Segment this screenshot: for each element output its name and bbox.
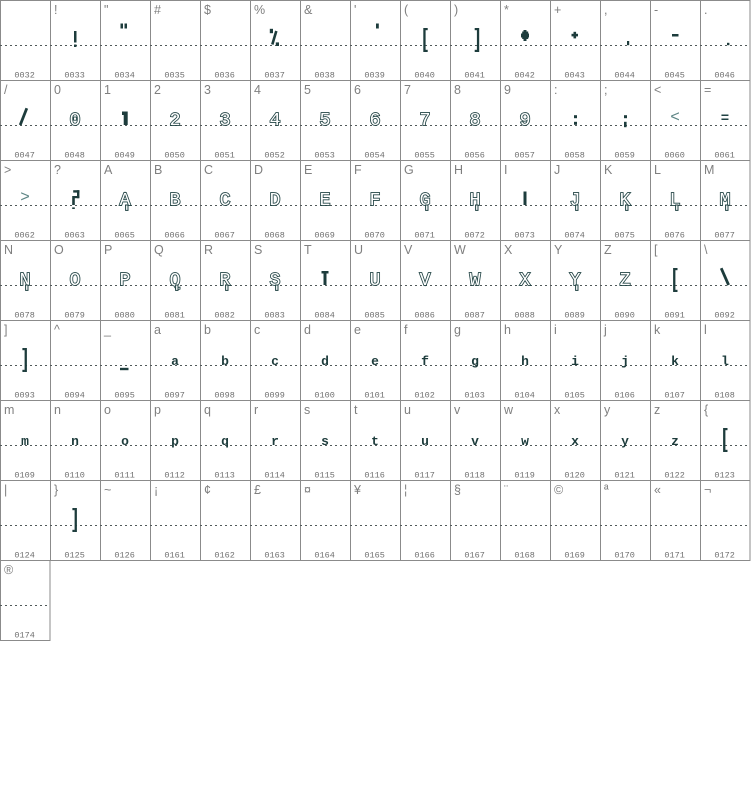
svg-text:N: N	[4, 243, 13, 257]
svg-text:K: K	[620, 191, 631, 211]
svg-text:0043: 0043	[564, 71, 584, 81]
svg-text:0121: 0121	[614, 471, 634, 481]
svg-text:n: n	[54, 403, 61, 417]
svg-text:0120: 0120	[564, 471, 584, 481]
svg-text:7: 7	[419, 110, 430, 131]
svg-text:0041: 0041	[464, 71, 484, 81]
svg-text:H: H	[470, 191, 481, 211]
svg-text:#: #	[154, 3, 161, 17]
svg-text:0070: 0070	[364, 231, 384, 241]
svg-text:2: 2	[154, 83, 161, 97]
svg-text:3: 3	[219, 110, 230, 131]
svg-text:4: 4	[254, 83, 261, 97]
svg-text:0082: 0082	[214, 311, 234, 321]
svg-text:D: D	[254, 163, 263, 177]
svg-text:0115: 0115	[314, 471, 334, 481]
svg-text:0060: 0060	[664, 151, 684, 161]
svg-text:0084: 0084	[314, 311, 334, 321]
svg-text:0044: 0044	[614, 71, 634, 81]
svg-text:[: [	[654, 243, 658, 257]
svg-text:0114: 0114	[264, 471, 284, 481]
svg-text:0092: 0092	[714, 311, 734, 321]
svg-text:b: b	[204, 323, 211, 337]
svg-text:s: s	[304, 403, 310, 417]
svg-text:0059: 0059	[614, 151, 634, 161]
svg-text:R: R	[204, 243, 213, 257]
svg-text:x: x	[554, 403, 561, 417]
svg-text:0161: 0161	[164, 551, 184, 561]
svg-text:X: X	[520, 271, 531, 291]
svg-text:i: i	[554, 323, 557, 337]
svg-text:+: +	[554, 3, 561, 17]
svg-text:q: q	[221, 434, 229, 449]
svg-text:>: >	[20, 189, 30, 207]
svg-text:p: p	[154, 403, 161, 417]
svg-text:0051: 0051	[214, 151, 234, 161]
svg-text:L: L	[654, 163, 661, 177]
svg-text:h: h	[504, 323, 511, 337]
svg-text:t: t	[354, 403, 358, 417]
svg-text:z: z	[654, 403, 660, 417]
svg-text:G: G	[420, 191, 431, 211]
svg-text:Q: Q	[170, 271, 181, 291]
svg-text:0033: 0033	[64, 71, 84, 81]
svg-text:u: u	[404, 403, 411, 417]
svg-text:8: 8	[454, 83, 461, 97]
svg-text:0105: 0105	[564, 391, 584, 401]
svg-text:0168: 0168	[514, 551, 534, 561]
svg-text:;: ;	[604, 83, 607, 97]
svg-text:i: i	[571, 354, 579, 369]
svg-text:Z: Z	[604, 243, 612, 257]
svg-text:^: ^	[54, 323, 60, 337]
svg-text:0049: 0049	[114, 151, 134, 161]
svg-text:0046: 0046	[714, 71, 734, 81]
svg-text:Y: Y	[570, 271, 581, 291]
svg-text:0: 0	[69, 110, 80, 131]
svg-text:0083: 0083	[264, 311, 284, 321]
svg-text:r: r	[254, 403, 258, 417]
svg-text:{: {	[704, 403, 708, 417]
svg-text:B: B	[154, 163, 162, 177]
svg-text:0062: 0062	[14, 231, 34, 241]
svg-text:¥: ¥	[353, 483, 361, 497]
svg-text:P: P	[120, 271, 131, 291]
svg-text:E: E	[304, 163, 312, 177]
svg-text:0: 0	[54, 83, 61, 97]
svg-text:0093: 0093	[14, 391, 34, 401]
svg-text:J: J	[554, 163, 560, 177]
svg-text:0170: 0170	[614, 551, 634, 561]
svg-text:M: M	[720, 191, 731, 211]
svg-text:0090: 0090	[614, 311, 634, 321]
svg-text:0094: 0094	[64, 391, 84, 401]
svg-text:0040: 0040	[414, 71, 434, 81]
svg-text:.: .	[704, 3, 707, 17]
svg-text:0057: 0057	[514, 151, 534, 161]
svg-text:0097: 0097	[164, 391, 184, 401]
svg-text:S: S	[270, 271, 281, 291]
svg-text:0122: 0122	[664, 471, 684, 481]
svg-text:0038: 0038	[314, 71, 334, 81]
svg-text:": "	[104, 3, 108, 17]
svg-text:0100: 0100	[314, 391, 334, 401]
svg-text:/: /	[4, 83, 8, 97]
svg-text:\: \	[704, 243, 708, 257]
svg-text:l: l	[721, 354, 729, 369]
svg-text:©: ©	[554, 483, 564, 497]
svg-text:0169: 0169	[564, 551, 584, 561]
svg-text:Z: Z	[620, 271, 631, 291]
svg-text:0102: 0102	[414, 391, 434, 401]
svg-text:k: k	[654, 323, 661, 337]
svg-text:0065: 0065	[114, 231, 134, 241]
svg-text:0034: 0034	[114, 71, 134, 81]
svg-text:O: O	[70, 271, 81, 291]
svg-text:A: A	[120, 191, 131, 211]
svg-text:0088: 0088	[514, 311, 534, 321]
svg-text:0050: 0050	[164, 151, 184, 161]
svg-text:x: x	[571, 434, 579, 449]
svg-text:$: $	[204, 3, 211, 17]
svg-text:U: U	[370, 271, 381, 291]
svg-text:0172: 0172	[714, 551, 734, 561]
svg-text:g: g	[454, 323, 461, 337]
svg-text:L: L	[670, 191, 681, 211]
svg-text:F: F	[354, 163, 362, 177]
svg-text:U: U	[354, 243, 363, 257]
svg-text:0163: 0163	[264, 551, 284, 561]
svg-text:¨: ¨	[504, 483, 508, 497]
svg-text:,: ,	[604, 3, 607, 17]
svg-text:0118: 0118	[464, 471, 484, 481]
svg-text:-: -	[654, 3, 658, 17]
svg-text:t: t	[371, 434, 379, 449]
svg-text:R: R	[220, 271, 231, 291]
svg-text:&: &	[304, 3, 313, 17]
svg-text:*: *	[504, 3, 509, 17]
svg-text:®: ®	[4, 563, 14, 577]
svg-text:d: d	[304, 323, 311, 337]
svg-text:o: o	[121, 434, 129, 449]
svg-text:!: !	[54, 3, 57, 17]
svg-text:0125: 0125	[64, 551, 84, 561]
svg-text:V: V	[404, 243, 413, 257]
svg-text:e: e	[354, 323, 361, 337]
svg-text:0167: 0167	[464, 551, 484, 561]
svg-text:0165: 0165	[364, 551, 384, 561]
svg-text:0116: 0116	[364, 471, 384, 481]
svg-text:0058: 0058	[564, 151, 584, 161]
svg-text:0077: 0077	[714, 231, 734, 241]
svg-text:|: |	[4, 483, 7, 497]
svg-text:0126: 0126	[114, 551, 134, 561]
svg-text::: :	[554, 83, 557, 97]
svg-text:0171: 0171	[664, 551, 684, 561]
svg-text:4: 4	[269, 110, 280, 131]
svg-text:w: w	[521, 434, 529, 449]
svg-text:z: z	[671, 434, 679, 449]
svg-text:~: ~	[104, 483, 111, 497]
svg-text:9: 9	[519, 110, 530, 131]
svg-text:v: v	[454, 403, 461, 417]
svg-text:0081: 0081	[164, 311, 184, 321]
svg-text:v: v	[471, 434, 479, 449]
svg-text:n: n	[71, 434, 79, 449]
svg-text:o: o	[104, 403, 111, 417]
svg-text:0123: 0123	[714, 471, 734, 481]
svg-text:0061: 0061	[714, 151, 734, 161]
svg-text:0048: 0048	[64, 151, 84, 161]
svg-text:?: ?	[54, 163, 61, 177]
svg-text:0078: 0078	[14, 311, 34, 321]
svg-text:0089: 0089	[564, 311, 584, 321]
svg-text:C: C	[220, 191, 231, 211]
svg-text:0164: 0164	[314, 551, 334, 561]
svg-text:8: 8	[469, 110, 480, 131]
svg-text:§: §	[454, 483, 461, 497]
svg-text:B: B	[170, 191, 181, 211]
svg-text:0095: 0095	[114, 391, 134, 401]
svg-text:0117: 0117	[414, 471, 434, 481]
svg-text:j: j	[621, 354, 629, 369]
svg-text:J: J	[570, 191, 581, 211]
svg-text:0071: 0071	[414, 231, 434, 241]
svg-text:<: <	[670, 109, 680, 127]
svg-text:P: P	[104, 243, 112, 257]
svg-text:0112: 0112	[164, 471, 184, 481]
svg-text:0069: 0069	[314, 231, 334, 241]
svg-text:A: A	[104, 163, 113, 177]
svg-text:0054: 0054	[364, 151, 384, 161]
svg-text:0042: 0042	[514, 71, 534, 81]
svg-text:0099: 0099	[264, 391, 284, 401]
svg-text:0063: 0063	[64, 231, 84, 241]
svg-text:0124: 0124	[14, 551, 34, 561]
svg-text:0113: 0113	[214, 471, 234, 481]
svg-text:V: V	[420, 271, 431, 291]
svg-text:0045: 0045	[664, 71, 684, 81]
svg-text:0103: 0103	[464, 391, 484, 401]
svg-text:0174: 0174	[14, 631, 34, 641]
svg-text:7: 7	[404, 83, 411, 97]
svg-text:0101: 0101	[364, 391, 384, 401]
svg-text:0073: 0073	[514, 231, 534, 241]
svg-text:¢: ¢	[204, 483, 211, 497]
svg-text:a: a	[171, 354, 179, 369]
svg-text:y: y	[621, 434, 629, 449]
svg-text:0087: 0087	[464, 311, 484, 321]
svg-text:f: f	[421, 354, 429, 369]
svg-text:0055: 0055	[414, 151, 434, 161]
svg-text:e: e	[371, 354, 379, 369]
svg-text:s: s	[321, 434, 329, 449]
svg-text:6: 6	[354, 83, 361, 97]
svg-text:m: m	[4, 403, 14, 417]
svg-text:£: £	[254, 483, 261, 497]
svg-text:0067: 0067	[214, 231, 234, 241]
svg-text:0166: 0166	[414, 551, 434, 561]
svg-text:0072: 0072	[464, 231, 484, 241]
svg-text:¬: ¬	[704, 483, 711, 497]
svg-text:9: 9	[504, 83, 511, 97]
svg-text:0108: 0108	[714, 391, 734, 401]
svg-text:0107: 0107	[664, 391, 684, 401]
svg-text:ª: ª	[604, 483, 609, 497]
svg-text:w: w	[503, 403, 514, 417]
svg-text:0068: 0068	[264, 231, 284, 241]
svg-text:>: >	[4, 163, 11, 177]
svg-text:X: X	[504, 243, 513, 257]
svg-text:0076: 0076	[664, 231, 684, 241]
svg-text:0047: 0047	[14, 151, 34, 161]
svg-text:¡: ¡	[154, 483, 158, 497]
svg-text:E: E	[320, 191, 331, 211]
svg-text:g: g	[471, 354, 479, 369]
svg-text:0036: 0036	[214, 71, 234, 81]
svg-text:c: c	[271, 354, 279, 369]
svg-text:W: W	[470, 271, 481, 291]
svg-text:m: m	[21, 434, 29, 449]
svg-text:Y: Y	[554, 243, 563, 257]
svg-text:0085: 0085	[364, 311, 384, 321]
svg-text:0111: 0111	[114, 471, 134, 481]
svg-text:0086: 0086	[414, 311, 434, 321]
svg-text:b: b	[221, 354, 229, 369]
svg-text:C: C	[204, 163, 213, 177]
svg-text:k: k	[671, 354, 679, 369]
svg-text:¤: ¤	[304, 483, 311, 497]
svg-text:c: c	[254, 323, 260, 337]
svg-text:0091: 0091	[664, 311, 684, 321]
svg-text:0106: 0106	[614, 391, 634, 401]
svg-text:I: I	[504, 163, 507, 177]
svg-text:2: 2	[169, 110, 180, 131]
svg-text:<: <	[654, 83, 661, 97]
svg-text:r: r	[271, 434, 279, 449]
svg-text:0032: 0032	[14, 71, 34, 81]
svg-text:0119: 0119	[514, 471, 534, 481]
svg-text:0035: 0035	[164, 71, 184, 81]
svg-text:H: H	[454, 163, 463, 177]
svg-text:0039: 0039	[364, 71, 384, 81]
svg-text:3: 3	[204, 83, 211, 97]
svg-text:0104: 0104	[514, 391, 534, 401]
svg-text:0098: 0098	[214, 391, 234, 401]
svg-text:l: l	[704, 323, 707, 337]
svg-text:0052: 0052	[264, 151, 284, 161]
svg-text:G: G	[404, 163, 414, 177]
svg-text:O: O	[54, 243, 64, 257]
svg-text:M: M	[704, 163, 714, 177]
svg-text:F: F	[370, 191, 381, 211]
svg-text:_: _	[103, 323, 112, 337]
svg-text:0056: 0056	[464, 151, 484, 161]
svg-text:0079: 0079	[64, 311, 84, 321]
svg-text:q: q	[204, 403, 211, 417]
svg-text:0162: 0162	[214, 551, 234, 561]
svg-text:¦: ¦	[404, 483, 407, 497]
svg-text:=: =	[704, 83, 711, 97]
svg-text:«: «	[654, 483, 661, 497]
svg-text:0075: 0075	[614, 231, 634, 241]
svg-text:0066: 0066	[164, 231, 184, 241]
svg-text:0080: 0080	[114, 311, 134, 321]
svg-text:0074: 0074	[564, 231, 584, 241]
svg-text:]: ]	[4, 323, 7, 337]
svg-text:): )	[454, 3, 458, 17]
svg-text:S: S	[254, 243, 262, 257]
svg-text:p: p	[171, 434, 179, 449]
svg-text:5: 5	[319, 110, 330, 131]
svg-text:K: K	[604, 163, 613, 177]
svg-text:=: =	[721, 111, 729, 127]
svg-text:5: 5	[304, 83, 311, 97]
svg-text:h: h	[521, 354, 529, 369]
svg-text:u: u	[421, 434, 429, 449]
svg-text:N: N	[20, 271, 31, 291]
svg-text:0110: 0110	[64, 471, 84, 481]
svg-text:y: y	[604, 403, 611, 417]
svg-text:W: W	[454, 243, 466, 257]
svg-text:}: }	[54, 483, 58, 497]
svg-text:Q: Q	[154, 243, 164, 257]
svg-text:f: f	[404, 323, 408, 337]
svg-text:T: T	[304, 243, 312, 257]
svg-text:0109: 0109	[14, 471, 34, 481]
svg-text:j: j	[603, 323, 607, 337]
svg-text:1: 1	[104, 83, 111, 97]
svg-text:0037: 0037	[264, 71, 284, 81]
svg-text:0053: 0053	[314, 151, 334, 161]
svg-text:D: D	[270, 191, 281, 211]
svg-text:': '	[354, 3, 356, 17]
svg-text:a: a	[154, 323, 161, 337]
svg-text:d: d	[321, 354, 329, 369]
svg-text:%: %	[254, 3, 265, 17]
svg-text:6: 6	[369, 110, 380, 131]
